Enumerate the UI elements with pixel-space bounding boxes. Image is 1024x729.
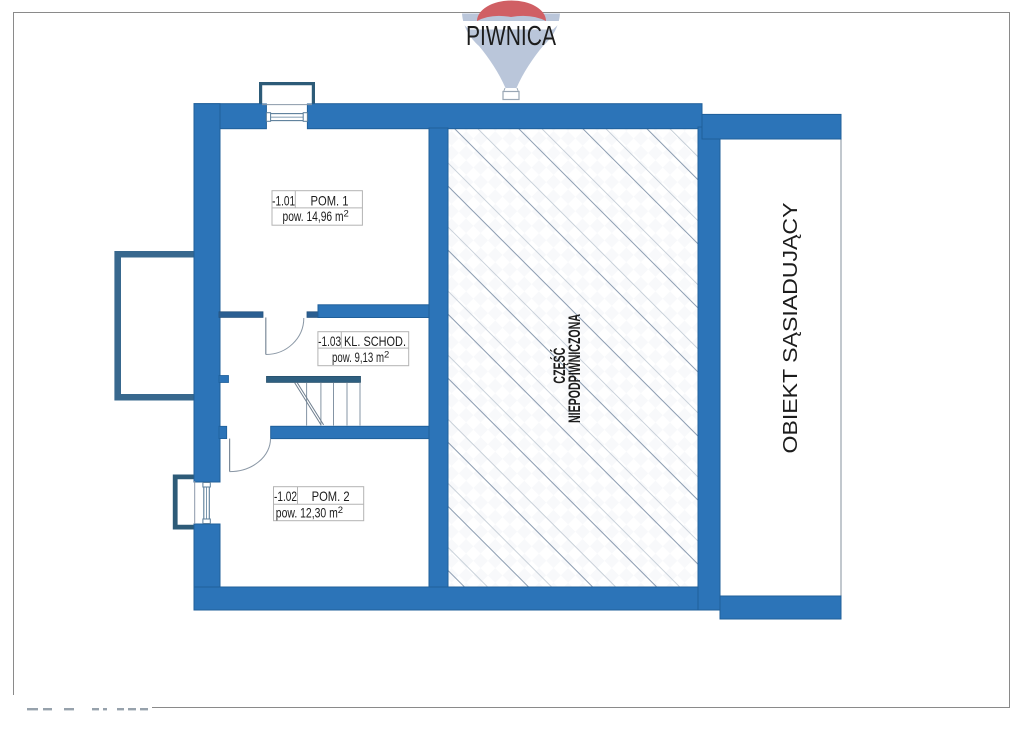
svg-text:PIWNICA: PIWNICA — [466, 20, 557, 51]
svg-text:KL. SCHOD.: KL. SCHOD. — [344, 333, 406, 349]
svg-text:-1.03: -1.03 — [318, 333, 341, 349]
svg-text:-1.01: -1.01 — [272, 192, 295, 208]
svg-text:NIEPODPIWNICZONA: NIEPODPIWNICZONA — [566, 314, 584, 423]
svg-text:OBIEKT SĄSIADUJĄCY: OBIEKT SĄSIADUJĄCY — [780, 203, 802, 454]
svg-text:POM. 1: POM. 1 — [311, 192, 349, 208]
svg-text:pow. 12,30 m2: pow. 12,30 m2 — [276, 505, 343, 521]
svg-text:-1.02: -1.02 — [274, 488, 297, 504]
svg-text:pow. 9,13 m2: pow. 9,13 m2 — [332, 349, 389, 365]
svg-text:pow. 14,96 m2: pow. 14,96 m2 — [283, 208, 349, 224]
svg-text:POM. 2: POM. 2 — [312, 488, 350, 504]
